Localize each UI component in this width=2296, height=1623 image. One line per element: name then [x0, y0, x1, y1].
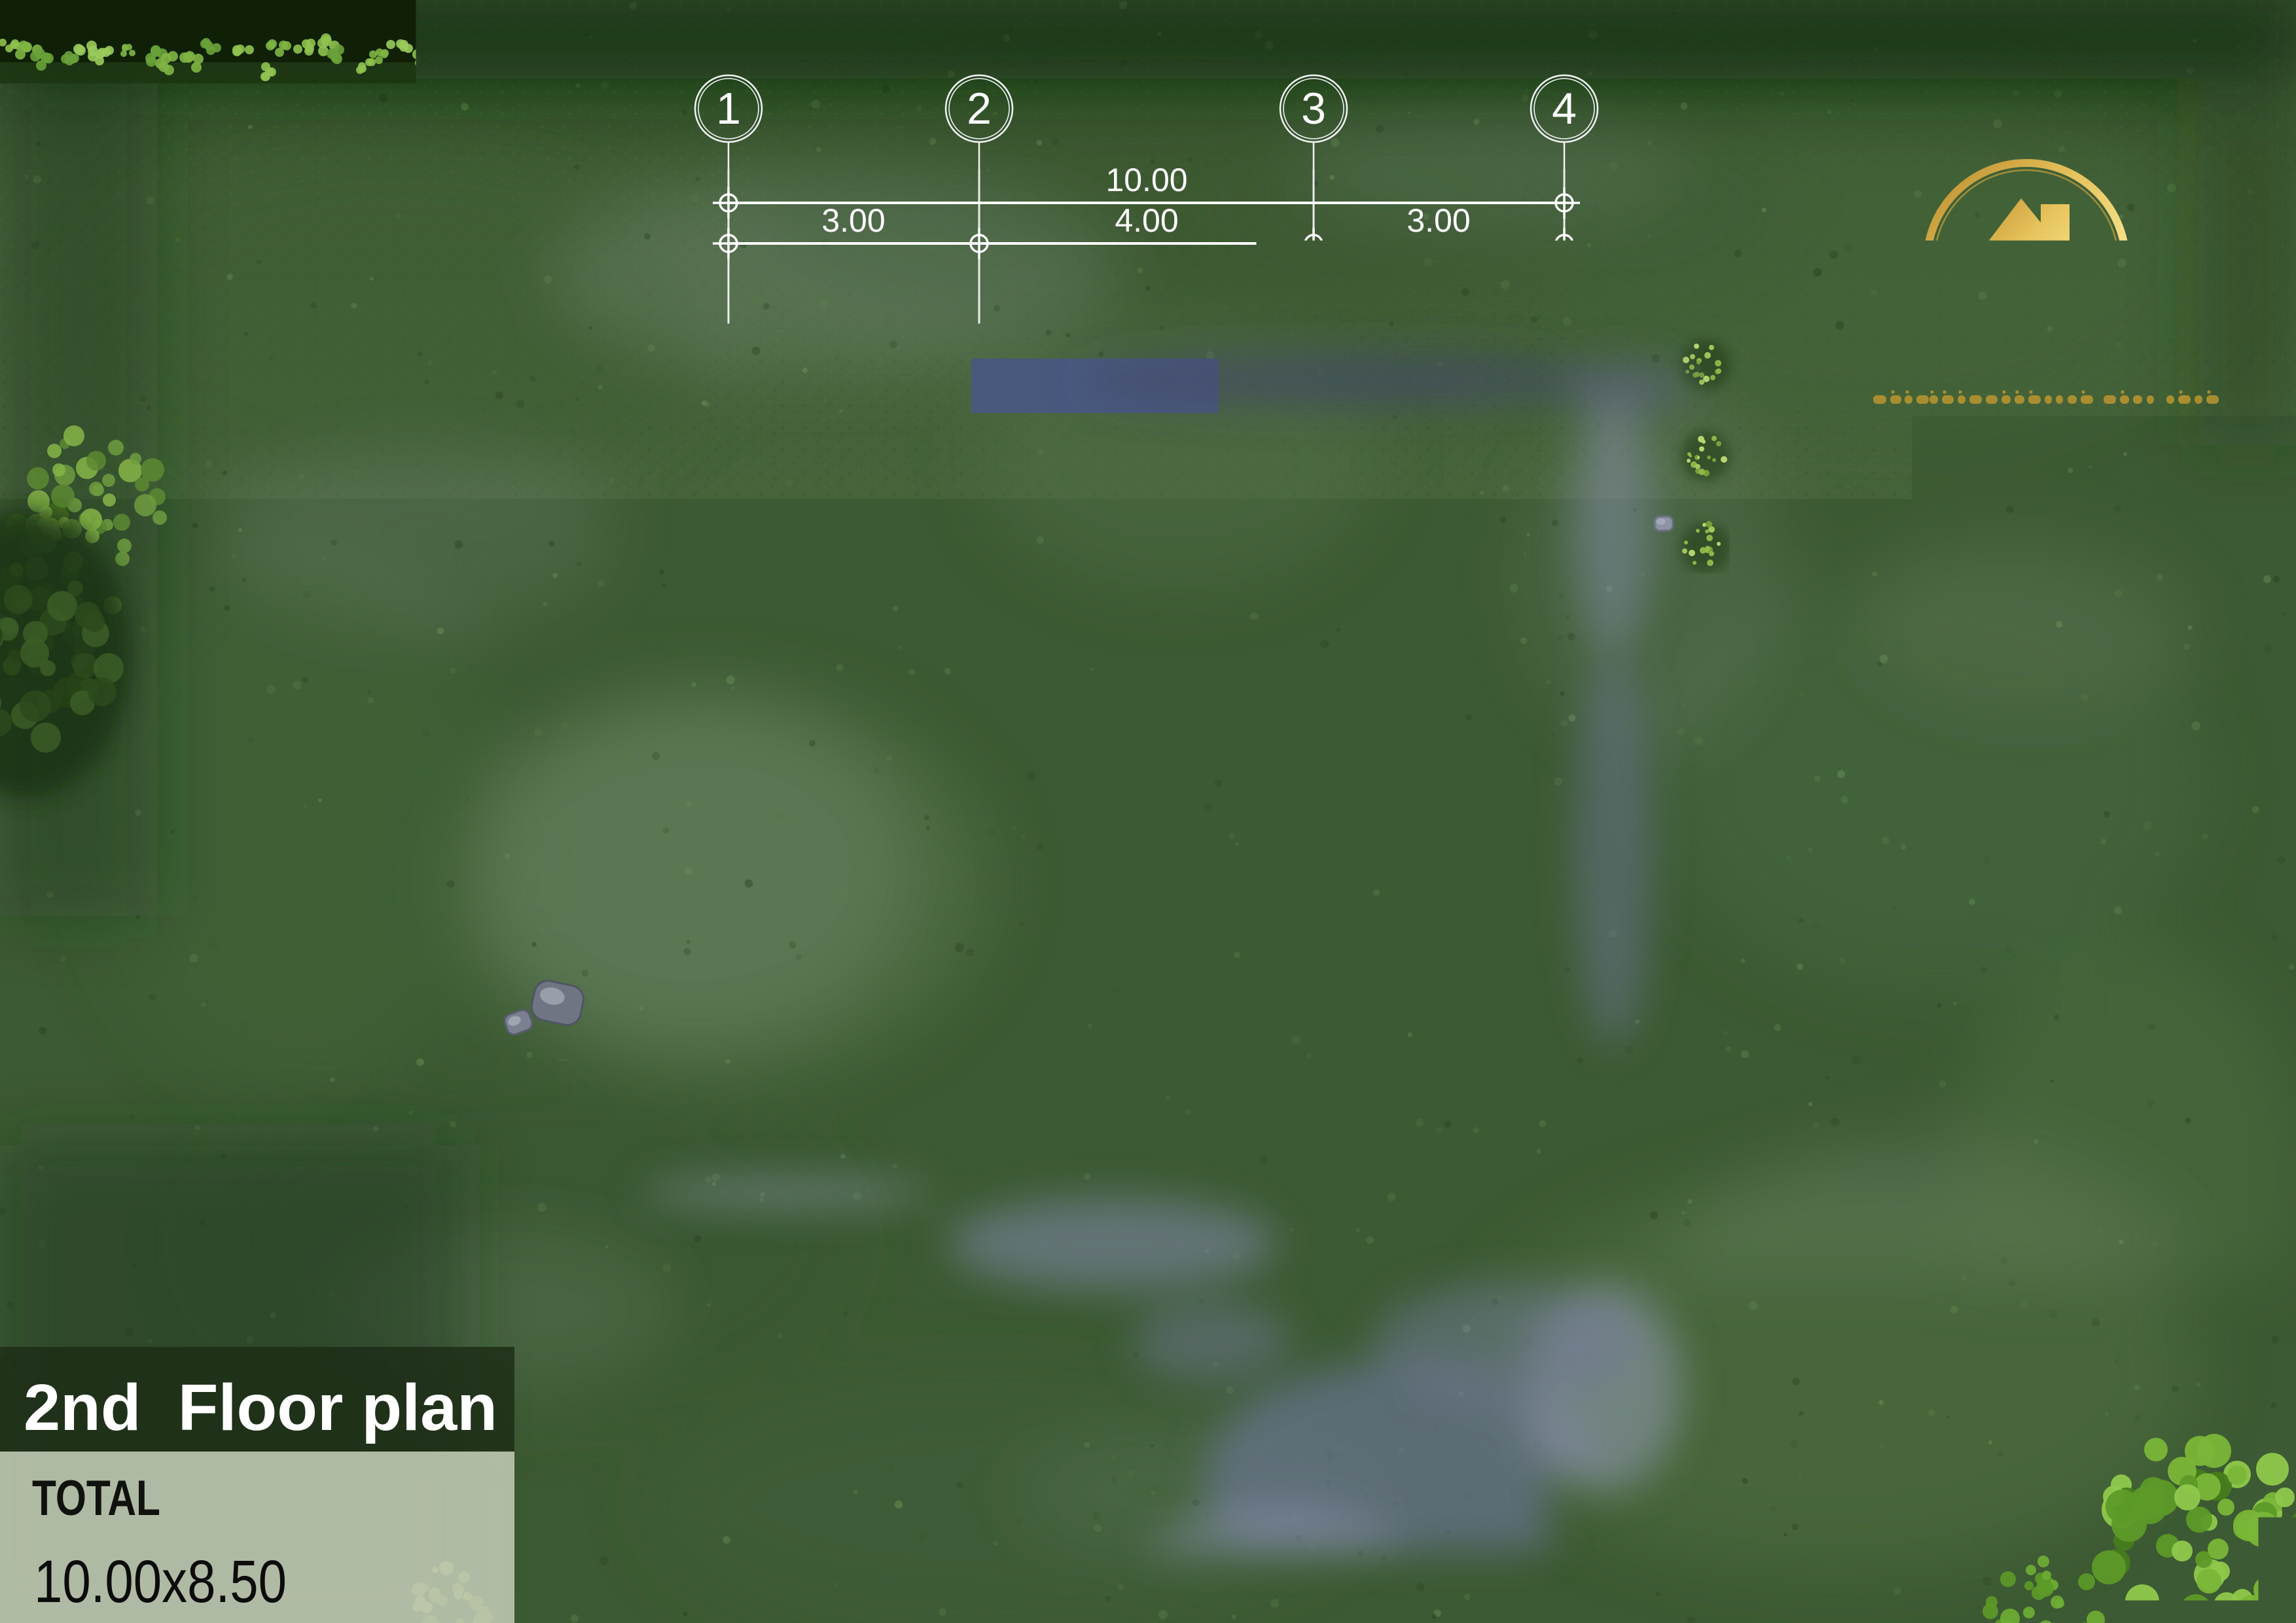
svg-text:C: C: [278, 993, 308, 1041]
svg-text:3.00: 3.00: [821, 202, 885, 239]
svg-text:E: E: [279, 491, 308, 539]
svg-text:A: A: [279, 1202, 308, 1249]
svg-text:TOTAL: TOTAL: [32, 1471, 160, 1526]
svg-text:3: 3: [1301, 84, 1326, 134]
svg-text:4: 4: [1552, 84, 1577, 134]
svg-text:4.00: 4.00: [1115, 202, 1178, 239]
svg-text:10.00x8.50: 10.00x8.50: [34, 1548, 287, 1615]
svg-text:1: 1: [716, 84, 741, 134]
svg-text:2nd Floor plan: 2nd Floor plan: [24, 1371, 497, 1444]
svg-text:2: 2: [967, 84, 992, 134]
svg-text:3.00: 3.00: [1407, 202, 1470, 239]
svg-text:10.00: 10.00: [1105, 162, 1187, 198]
svg-text:3: 3: [1501, 613, 1523, 658]
svg-text:B: B: [279, 1077, 308, 1124]
svg-text:D: D: [278, 743, 308, 790]
svg-text:3.00: 3.00: [423, 598, 460, 662]
svg-text:8.50: 8.50: [334, 828, 370, 891]
svg-text:2: 2: [1484, 1002, 1506, 1047]
svg-text:1.50: 1.50: [423, 1120, 460, 1184]
svg-text:1.00: 1.00: [423, 1016, 460, 1080]
svg-text:3.00: 3.00: [423, 849, 460, 912]
